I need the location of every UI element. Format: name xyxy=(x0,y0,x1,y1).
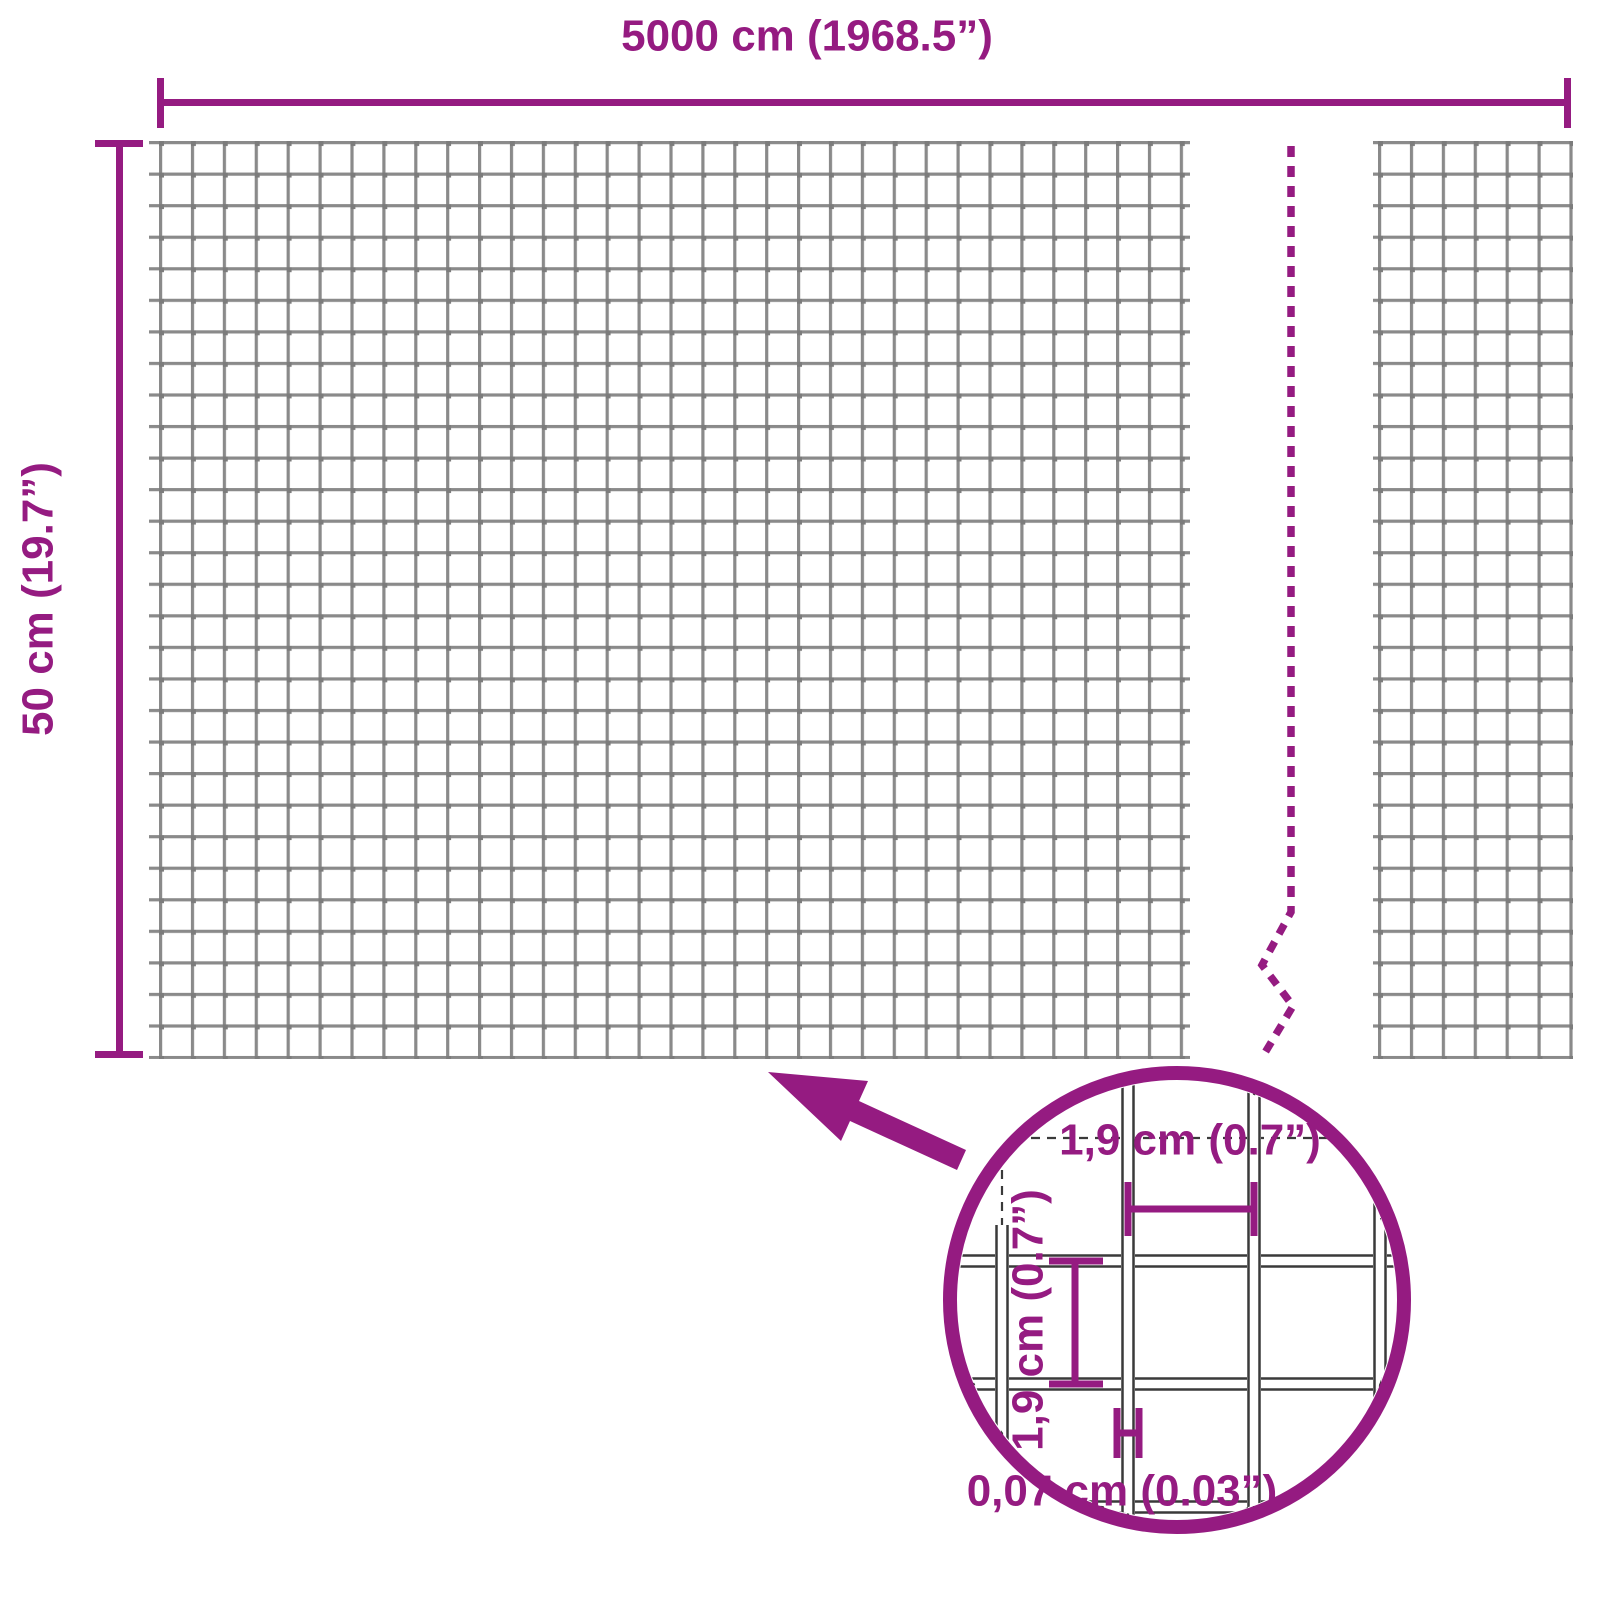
mesh-panel-right xyxy=(1373,141,1573,1059)
zoom-arrow-icon xyxy=(768,1072,966,1170)
width-dimension-line xyxy=(160,99,1568,106)
zoom-detail: 1,9 cm (0.7”) 1,9 cm (0.7”) 0,07 cm (0.0… xyxy=(940,1070,1414,1530)
height-dimension-line xyxy=(116,143,123,1055)
mesh-width-label: 1,9 cm (0.7”) xyxy=(1059,1116,1321,1165)
width-dimension-tick-right xyxy=(1564,78,1571,128)
diagram-canvas: 5000 cm (1968.5”) 50 cm (19.7”) xyxy=(0,0,1600,1600)
mesh-height-tick-bottom xyxy=(1049,1381,1103,1388)
mesh-panel-left xyxy=(149,141,1190,1059)
width-dimension-label: 5000 cm (1968.5”) xyxy=(621,12,993,61)
break-line xyxy=(1262,146,1293,1056)
mesh-height-label: 1,9 cm (0.7”) xyxy=(1004,1189,1053,1451)
height-dimension: 50 cm (19.7”) xyxy=(14,140,144,1058)
height-dimension-tick-bottom xyxy=(95,1051,143,1058)
wire-thickness-label: 0,07 cm (0.03”) xyxy=(967,1467,1278,1516)
wire-thickness-bracket-bar xyxy=(1118,1430,1138,1437)
mesh-height-dimension-line xyxy=(1072,1261,1079,1384)
height-dimension-tick-top xyxy=(95,140,143,147)
width-dimension: 5000 cm (1968.5”) xyxy=(157,12,1571,129)
mesh-width-dimension-line xyxy=(1128,1206,1254,1213)
mesh-width-tick-left xyxy=(1125,1182,1132,1236)
mesh-width-tick-right xyxy=(1251,1182,1258,1236)
width-dimension-tick-left xyxy=(157,78,164,128)
mesh-height-tick-top xyxy=(1049,1258,1103,1265)
height-dimension-label: 50 cm (19.7”) xyxy=(14,462,63,736)
